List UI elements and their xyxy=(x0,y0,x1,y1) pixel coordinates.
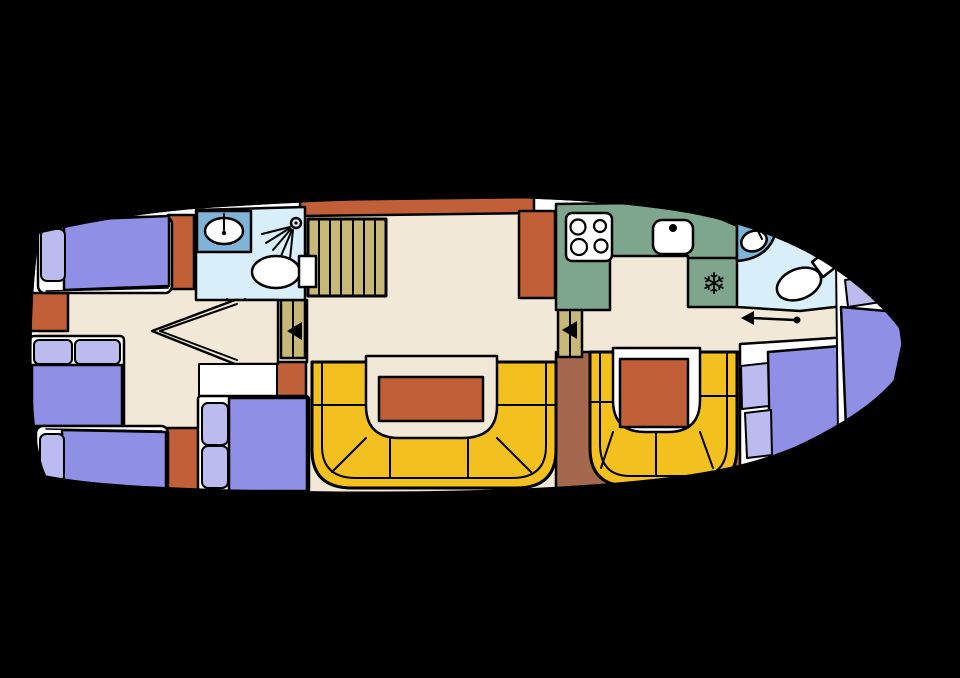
berth-fwd-top-pillow xyxy=(41,229,65,281)
galley-sink-faucet-dot xyxy=(669,224,677,232)
berth-aft-side-blanket xyxy=(841,307,903,428)
berth-mid-blanket xyxy=(229,398,307,491)
stove-burner xyxy=(571,239,587,255)
fridge-snowflake-icon: ❄ xyxy=(701,267,726,302)
bed-aft-pillow xyxy=(745,410,772,458)
berth-fwd-double-pillow xyxy=(75,340,120,364)
shower-head-dot xyxy=(294,221,297,224)
stove-burner xyxy=(595,240,608,253)
cabin-mid-floor xyxy=(199,364,277,398)
trim-salon-right-column xyxy=(519,211,555,298)
sink-fwd-faucet-dot xyxy=(222,231,226,235)
boat-floor-plan-stage: ❄ xyxy=(0,0,960,678)
bed-aft-pillow xyxy=(741,363,769,409)
trim-fwd-bottom xyxy=(164,428,200,490)
berth-fwd-double-pillow xyxy=(34,340,72,364)
table-aft xyxy=(620,359,688,427)
trim-fwd-left xyxy=(28,293,68,331)
berth-fwd-top-blanket xyxy=(64,216,169,290)
toilet-fwd-bowl xyxy=(252,256,300,288)
berth-fwd-double-blanket xyxy=(32,365,122,426)
walkway-slide-arrow-dot xyxy=(794,317,801,324)
berth-mid-pillow xyxy=(202,403,228,445)
boat-floor-plan: ❄ xyxy=(0,0,960,678)
table-fwd xyxy=(379,377,483,421)
stove-burner xyxy=(594,220,606,232)
hull-interior: ❄ xyxy=(28,196,905,494)
toilet-fwd-tank xyxy=(299,256,316,287)
stove-burner xyxy=(571,220,586,235)
berth-mid-pillow xyxy=(202,446,228,488)
trim-ladder-fwd-block xyxy=(276,362,306,398)
